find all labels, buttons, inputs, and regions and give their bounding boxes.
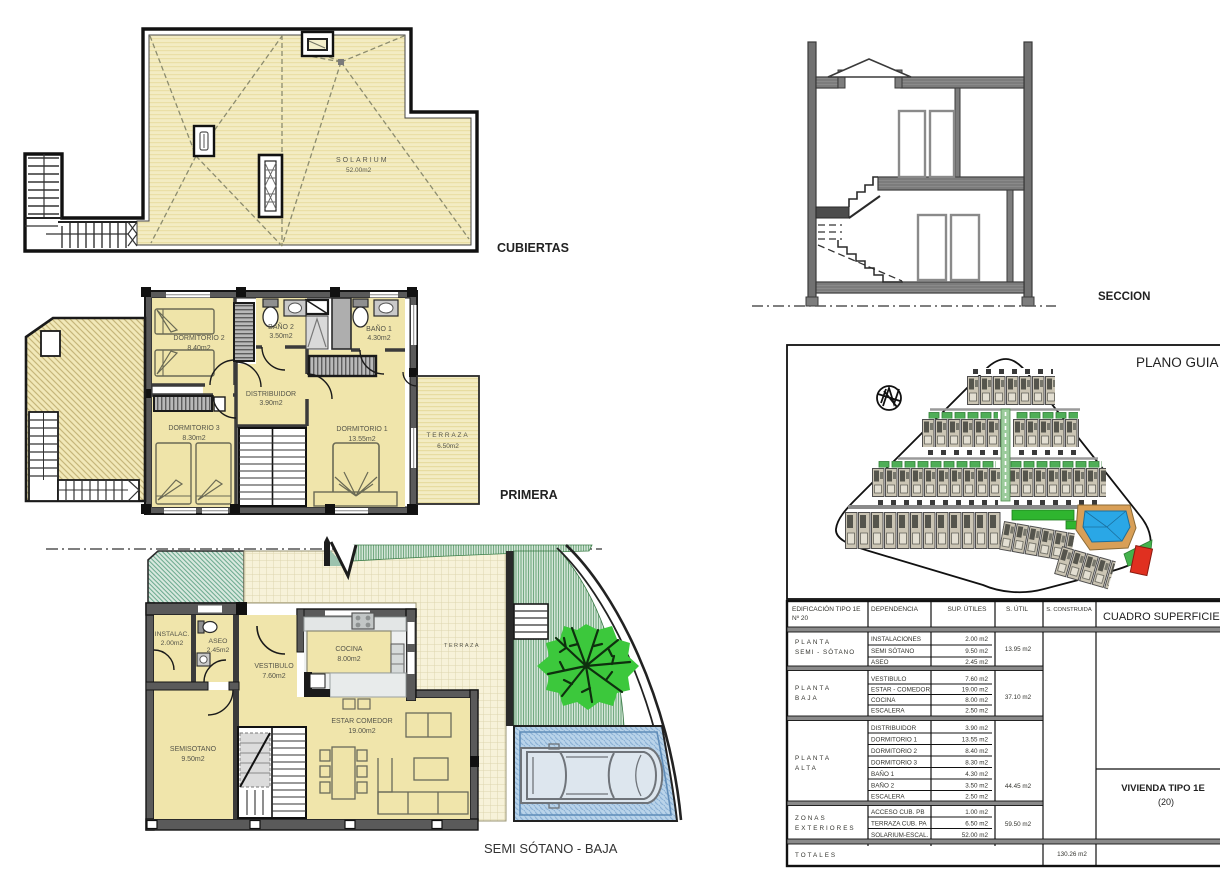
svg-text:44.45 m2: 44.45 m2 — [1005, 783, 1032, 790]
svg-text:BAÑO 2: BAÑO 2 — [268, 322, 294, 331]
svg-text:PLANTA: PLANTA — [795, 639, 831, 646]
svg-text:BAÑO 1: BAÑO 1 — [366, 324, 392, 333]
svg-text:INSTALAC.: INSTALAC. — [155, 631, 190, 638]
svg-text:COCINA: COCINA — [335, 646, 363, 653]
svg-text:1.00 m2: 1.00 m2 — [965, 809, 988, 816]
svg-text:ALTA: ALTA — [795, 765, 818, 772]
svg-text:2.45m2: 2.45m2 — [207, 647, 230, 654]
svg-text:SOLARIUM: SOLARIUM — [336, 157, 389, 164]
svg-text:52.00m2: 52.00m2 — [346, 167, 372, 174]
svg-text:2.50 m2: 2.50 m2 — [965, 794, 988, 801]
svg-text:13.55m2: 13.55m2 — [348, 436, 375, 443]
svg-text:2.50 m2: 2.50 m2 — [965, 708, 988, 715]
svg-text:8.30 m2: 8.30 m2 — [965, 760, 988, 767]
svg-text:3.50m2: 3.50m2 — [269, 333, 292, 340]
svg-text:7.60 m2: 7.60 m2 — [965, 676, 988, 683]
svg-text:SUP. ÚTILES: SUP. ÚTILES — [948, 604, 988, 613]
svg-text:PLANTA: PLANTA — [795, 755, 831, 762]
svg-text:DORMITORIO 2: DORMITORIO 2 — [871, 748, 918, 755]
svg-text:SEMI SÓTANO: SEMI SÓTANO — [871, 646, 914, 655]
svg-text:DORMITORIO 3: DORMITORIO 3 — [871, 760, 918, 767]
svg-text:9.50m2: 9.50m2 — [181, 756, 204, 763]
svg-text:DISTRIBUIDOR: DISTRIBUIDOR — [246, 391, 296, 398]
svg-text:8.00 m2: 8.00 m2 — [965, 697, 988, 704]
svg-text:ASEO: ASEO — [871, 659, 889, 666]
svg-text:2.45 m2: 2.45 m2 — [965, 659, 988, 666]
svg-text:8.40m2: 8.40m2 — [187, 345, 210, 352]
svg-text:DORMITORIO 3: DORMITORIO 3 — [168, 425, 219, 432]
svg-text:PLANO GUIA: PLANO GUIA — [1136, 355, 1219, 370]
svg-text:3.50 m2: 3.50 m2 — [965, 783, 988, 790]
svg-text:7.60m2: 7.60m2 — [262, 673, 285, 680]
svg-text:9.50 m2: 9.50 m2 — [965, 648, 988, 655]
svg-text:SEMISOTANO: SEMISOTANO — [170, 746, 217, 753]
svg-text:8.30m2: 8.30m2 — [182, 435, 205, 442]
svg-text:CUADRO SUPERFICIES: CUADRO SUPERFICIES — [1103, 611, 1220, 623]
svg-text:ASEO: ASEO — [209, 638, 228, 645]
svg-text:13.55 m2: 13.55 m2 — [962, 737, 989, 744]
svg-text:3.90 m2: 3.90 m2 — [965, 725, 988, 732]
svg-text:SEMI SÓTANO - BAJA: SEMI SÓTANO - BAJA — [484, 841, 618, 856]
svg-text:19.00 m2: 19.00 m2 — [962, 687, 989, 694]
svg-text:19.00m2: 19.00m2 — [348, 728, 375, 735]
svg-text:BAÑO 2: BAÑO 2 — [871, 781, 895, 790]
svg-text:PRIMERA: PRIMERA — [500, 488, 558, 502]
svg-text:VESTIBULO: VESTIBULO — [254, 663, 294, 670]
svg-text:8.40 m2: 8.40 m2 — [965, 748, 988, 755]
svg-text:4.30m2: 4.30m2 — [367, 335, 390, 342]
svg-text:Nº 20: Nº 20 — [792, 615, 808, 622]
svg-text:2.00m2: 2.00m2 — [161, 640, 184, 647]
svg-text:SEMI - SÓTANO: SEMI - SÓTANO — [795, 647, 855, 656]
svg-text:BAJA: BAJA — [795, 695, 819, 702]
svg-text:BAÑO 1: BAÑO 1 — [871, 769, 895, 778]
svg-text:TERRAZA CUB. PA: TERRAZA CUB. PA — [871, 821, 927, 828]
svg-text:DISTRIBUIDOR: DISTRIBUIDOR — [871, 725, 917, 732]
svg-text:6.50 m2: 6.50 m2 — [965, 821, 988, 828]
svg-text:CUBIERTAS: CUBIERTAS — [497, 241, 569, 255]
svg-text:130.26 m2: 130.26 m2 — [1057, 851, 1087, 858]
svg-text:PLANTA: PLANTA — [795, 685, 831, 692]
svg-text:DORMITORIO 1: DORMITORIO 1 — [336, 426, 387, 433]
svg-text:ESCALERA: ESCALERA — [871, 794, 905, 801]
svg-text:ESTAR COMEDOR: ESTAR COMEDOR — [331, 718, 392, 725]
svg-text:ESCALERA: ESCALERA — [871, 708, 905, 715]
svg-text:DORMITORIO 1: DORMITORIO 1 — [871, 737, 918, 744]
svg-text:ZONAS: ZONAS — [795, 815, 827, 822]
svg-text:6.50m2: 6.50m2 — [437, 443, 459, 450]
svg-text:S. CONSTRUIDA: S. CONSTRUIDA — [1046, 607, 1092, 613]
svg-text:DEPENDENCIA: DEPENDENCIA — [871, 606, 919, 613]
svg-text:SOLARIUM-ESCAL.: SOLARIUM-ESCAL. — [871, 832, 929, 839]
svg-text:SECCION: SECCION — [1098, 291, 1150, 303]
svg-text:(20): (20) — [1158, 797, 1174, 807]
svg-text:EXTERIORES: EXTERIORES — [795, 825, 856, 832]
svg-text:INSTALACIONES: INSTALACIONES — [871, 636, 921, 643]
svg-text:2.00 m2: 2.00 m2 — [965, 636, 988, 643]
svg-text:TOTALES: TOTALES — [795, 852, 837, 859]
svg-text:59.50 m2: 59.50 m2 — [1005, 821, 1032, 828]
svg-text:VESTIBULO: VESTIBULO — [871, 676, 906, 683]
svg-text:COCINA: COCINA — [871, 697, 896, 704]
svg-text:ESTAR - COMEDOR: ESTAR - COMEDOR — [871, 687, 930, 694]
svg-text:EDIFICACIÓN TIPO 1E: EDIFICACIÓN TIPO 1E — [792, 604, 861, 613]
svg-text:37.10 m2: 37.10 m2 — [1005, 694, 1032, 701]
svg-text:4.30 m2: 4.30 m2 — [965, 771, 988, 778]
svg-text:ACCESO CUB. PB: ACCESO CUB. PB — [871, 809, 925, 816]
svg-text:S. ÚTIL: S. ÚTIL — [1006, 604, 1028, 613]
svg-text:DORMITORIO 2: DORMITORIO 2 — [173, 335, 224, 342]
svg-text:8.00m2: 8.00m2 — [337, 656, 360, 663]
svg-text:TERRAZA: TERRAZA — [427, 432, 470, 439]
svg-text:VIVIENDA TIPO 1E: VIVIENDA TIPO 1E — [1121, 783, 1205, 794]
svg-text:52.00 m2: 52.00 m2 — [962, 832, 989, 839]
svg-text:3.90m2: 3.90m2 — [259, 400, 282, 407]
svg-text:TERRAZA: TERRAZA — [444, 643, 480, 649]
svg-text:13.95 m2: 13.95 m2 — [1005, 646, 1032, 653]
